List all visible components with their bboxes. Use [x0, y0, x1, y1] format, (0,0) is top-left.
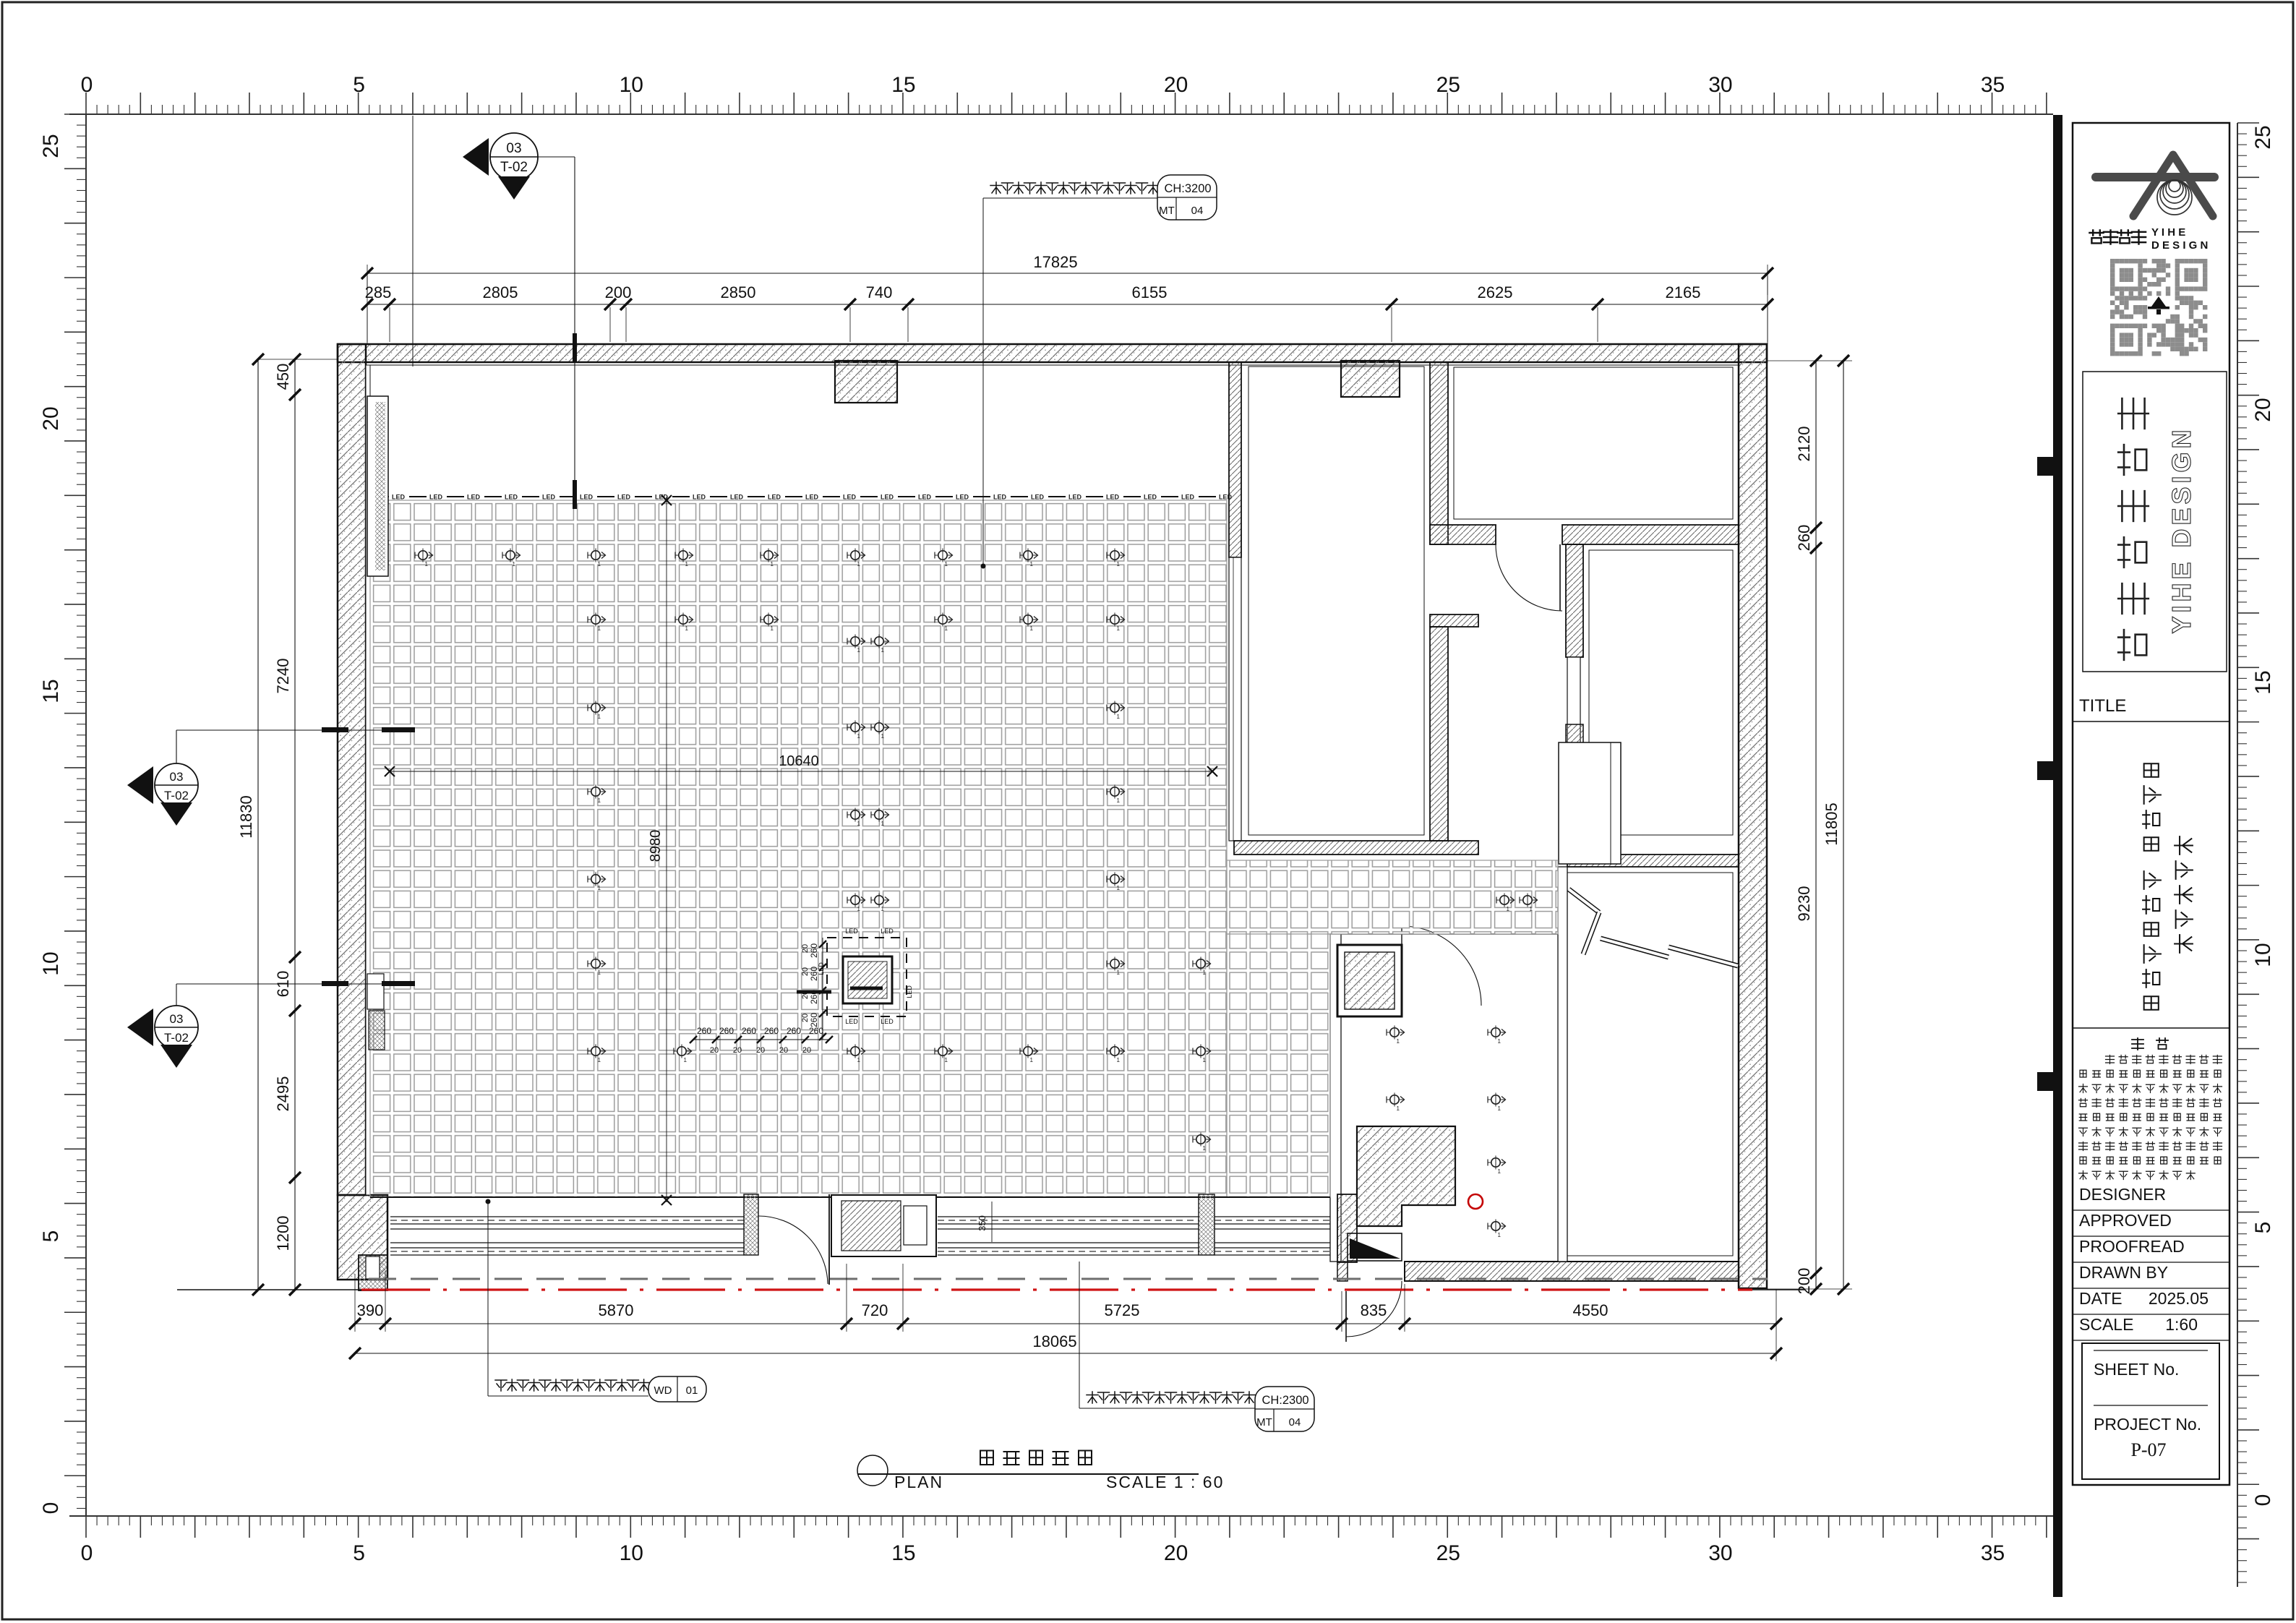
- svg-text:20: 20: [801, 944, 810, 953]
- svg-text:LED: LED: [1031, 494, 1045, 501]
- svg-text:15: 15: [39, 679, 63, 703]
- svg-text:5: 5: [353, 73, 365, 97]
- svg-text:P-07: P-07: [2130, 1439, 2166, 1460]
- svg-text:LED: LED: [768, 494, 781, 501]
- svg-text:01: 01: [686, 1384, 698, 1397]
- svg-text:LED: LED: [845, 928, 858, 935]
- svg-text:200: 200: [1795, 1268, 1813, 1295]
- svg-text:PLAN: PLAN: [894, 1473, 943, 1491]
- svg-text:720: 720: [862, 1301, 888, 1319]
- svg-text:8980: 8980: [648, 830, 664, 862]
- svg-text:LED: LED: [881, 928, 894, 935]
- svg-text:T-02: T-02: [164, 1031, 189, 1045]
- svg-text:10640: 10640: [779, 753, 819, 769]
- svg-text:7240: 7240: [274, 659, 292, 694]
- svg-text:260: 260: [809, 990, 819, 1004]
- svg-text:SCALE 1 : 60: SCALE 1 : 60: [1106, 1473, 1224, 1491]
- svg-text:WD: WD: [654, 1384, 672, 1397]
- svg-text:260: 260: [809, 1013, 819, 1027]
- svg-text:10: 10: [39, 951, 63, 975]
- svg-text:LED: LED: [580, 494, 594, 501]
- svg-text:LED: LED: [429, 494, 443, 501]
- svg-text:25: 25: [39, 134, 63, 158]
- svg-text:740: 740: [866, 283, 893, 301]
- svg-text:11830: 11830: [237, 795, 255, 839]
- svg-text:15: 15: [891, 1541, 915, 1565]
- svg-text:25: 25: [1436, 1541, 1460, 1565]
- svg-text:LED: LED: [881, 494, 894, 501]
- svg-text:04: 04: [1289, 1416, 1301, 1429]
- svg-text:1:60: 1:60: [2165, 1315, 2198, 1334]
- svg-text:11805: 11805: [1822, 802, 1841, 846]
- svg-text:SCALE: SCALE: [2079, 1315, 2133, 1334]
- svg-text:LED: LED: [617, 494, 631, 501]
- svg-text:LED: LED: [881, 1018, 894, 1025]
- svg-text:03: 03: [170, 1012, 184, 1026]
- svg-text:5870: 5870: [599, 1301, 634, 1319]
- svg-text:2625: 2625: [1478, 283, 1513, 301]
- svg-text:PROJECT No.: PROJECT No.: [2094, 1415, 2201, 1434]
- svg-text:APPROVED: APPROVED: [2079, 1211, 2172, 1230]
- svg-text:1200: 1200: [274, 1216, 292, 1251]
- svg-text:4550: 4550: [1573, 1301, 1609, 1319]
- svg-text:9230: 9230: [1795, 886, 1813, 922]
- svg-text:20: 20: [801, 967, 810, 976]
- svg-text:5: 5: [39, 1230, 63, 1243]
- svg-text:LED: LED: [730, 494, 744, 501]
- svg-text:260: 260: [719, 1026, 734, 1036]
- svg-text:15: 15: [2251, 670, 2275, 694]
- svg-text:10: 10: [620, 1541, 643, 1565]
- svg-text:03: 03: [170, 770, 184, 784]
- svg-text:Y I H E: Y I H E: [2151, 226, 2185, 239]
- svg-text:18065: 18065: [1032, 1332, 1076, 1350]
- svg-text:LED: LED: [542, 494, 556, 501]
- svg-text:20: 20: [1164, 73, 1188, 97]
- svg-text:20: 20: [802, 1046, 811, 1055]
- svg-text:2025.05: 2025.05: [2149, 1289, 2209, 1308]
- svg-text:260: 260: [787, 1026, 801, 1036]
- svg-text:T-02: T-02: [164, 789, 189, 802]
- svg-text:260: 260: [764, 1026, 779, 1036]
- svg-text:03: 03: [506, 141, 521, 156]
- svg-text:LED: LED: [993, 494, 1007, 501]
- svg-text:20: 20: [733, 1046, 742, 1055]
- svg-text:TITLE: TITLE: [2079, 696, 2126, 716]
- svg-text:LED: LED: [1219, 494, 1233, 501]
- svg-text:285: 285: [365, 283, 392, 301]
- svg-text:20: 20: [1164, 1541, 1188, 1565]
- svg-text:DESIGNER: DESIGNER: [2079, 1185, 2166, 1204]
- svg-text:LED: LED: [956, 494, 969, 501]
- svg-text:LED: LED: [392, 494, 406, 501]
- svg-text:6155: 6155: [1132, 283, 1168, 301]
- svg-text:30: 30: [1708, 1541, 1732, 1565]
- svg-text:DATE: DATE: [2079, 1289, 2122, 1308]
- svg-text:LED: LED: [467, 494, 481, 501]
- svg-text:0: 0: [2251, 1494, 2275, 1507]
- svg-text:LED: LED: [805, 494, 819, 501]
- svg-text:LED: LED: [693, 494, 706, 501]
- svg-text:D E S I G N: D E S I G N: [2151, 239, 2208, 252]
- svg-text:LED: LED: [845, 1018, 858, 1025]
- svg-text:2165: 2165: [1666, 283, 1701, 301]
- svg-text:LED: LED: [505, 494, 518, 501]
- svg-text:2495: 2495: [274, 1076, 292, 1112]
- svg-text:20: 20: [710, 1046, 719, 1055]
- svg-text:MT: MT: [1159, 205, 1175, 217]
- svg-text:0: 0: [39, 1502, 63, 1515]
- svg-text:04: 04: [1191, 205, 1204, 217]
- svg-text:10: 10: [620, 73, 643, 97]
- svg-text:2850: 2850: [721, 283, 756, 301]
- svg-text:LED: LED: [1181, 494, 1195, 501]
- svg-text:0: 0: [81, 73, 93, 97]
- svg-text:DRAWN BY: DRAWN BY: [2079, 1263, 2168, 1282]
- svg-text:260: 260: [697, 1026, 711, 1036]
- svg-text:30: 30: [1708, 73, 1732, 97]
- svg-text:835: 835: [1361, 1301, 1387, 1319]
- svg-text:LED: LED: [918, 494, 932, 501]
- svg-text:LED: LED: [1144, 494, 1157, 501]
- svg-text:PROOFREAD: PROOFREAD: [2079, 1237, 2185, 1256]
- svg-text:260: 260: [1795, 525, 1813, 552]
- svg-text:450: 450: [274, 364, 292, 390]
- svg-text:20: 20: [801, 1014, 810, 1022]
- svg-text:LED: LED: [1106, 494, 1120, 501]
- svg-text:15: 15: [891, 73, 915, 97]
- svg-text:2120: 2120: [1795, 427, 1813, 462]
- svg-text:20: 20: [801, 990, 810, 999]
- svg-text:35: 35: [1981, 1541, 2005, 1565]
- svg-text:LED: LED: [1068, 494, 1082, 501]
- svg-text:260: 260: [742, 1026, 756, 1036]
- svg-text:260: 260: [809, 967, 819, 981]
- svg-text:25: 25: [2251, 125, 2275, 149]
- svg-text:5: 5: [2251, 1222, 2275, 1234]
- svg-text:260: 260: [809, 943, 819, 958]
- svg-text:25: 25: [1436, 73, 1460, 97]
- svg-text:CH:2300: CH:2300: [1261, 1394, 1308, 1407]
- svg-text:20: 20: [779, 1046, 788, 1055]
- svg-text:20: 20: [2251, 398, 2275, 421]
- svg-text:LED: LED: [906, 985, 913, 998]
- svg-text:SHEET No.: SHEET No.: [2094, 1360, 2179, 1379]
- svg-text:20: 20: [756, 1046, 765, 1055]
- svg-text:LED: LED: [843, 494, 857, 501]
- svg-text:0: 0: [81, 1541, 93, 1565]
- svg-text:35: 35: [1981, 73, 2005, 97]
- svg-text:YIHE DESIGN: YIHE DESIGN: [2167, 426, 2196, 633]
- svg-text:17825: 17825: [1033, 253, 1077, 271]
- svg-text:390: 390: [357, 1301, 384, 1319]
- svg-text:T-02: T-02: [500, 160, 528, 175]
- svg-text:260: 260: [809, 1026, 823, 1036]
- svg-text:350: 350: [977, 1215, 988, 1231]
- svg-text:200: 200: [605, 283, 632, 301]
- svg-text:CH:3200: CH:3200: [1164, 182, 1211, 195]
- svg-text:10: 10: [2251, 943, 2275, 967]
- svg-text:MT: MT: [1256, 1416, 1272, 1429]
- svg-text:2805: 2805: [483, 283, 518, 301]
- svg-text:20: 20: [39, 406, 63, 430]
- svg-text:5725: 5725: [1105, 1301, 1140, 1319]
- svg-text:5: 5: [353, 1541, 365, 1565]
